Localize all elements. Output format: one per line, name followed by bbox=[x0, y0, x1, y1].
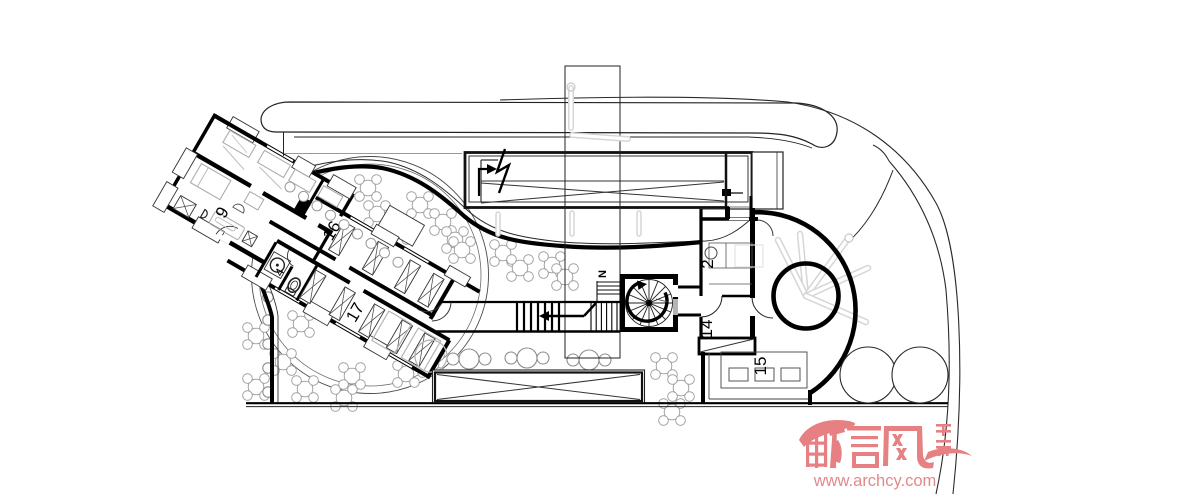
svg-text:N: N bbox=[597, 270, 609, 278]
svg-text:15: 15 bbox=[751, 357, 770, 376]
svg-text:14: 14 bbox=[697, 320, 716, 339]
svg-text:2: 2 bbox=[698, 259, 717, 268]
svg-text:www.archcy.com: www.archcy.com bbox=[813, 472, 937, 490]
